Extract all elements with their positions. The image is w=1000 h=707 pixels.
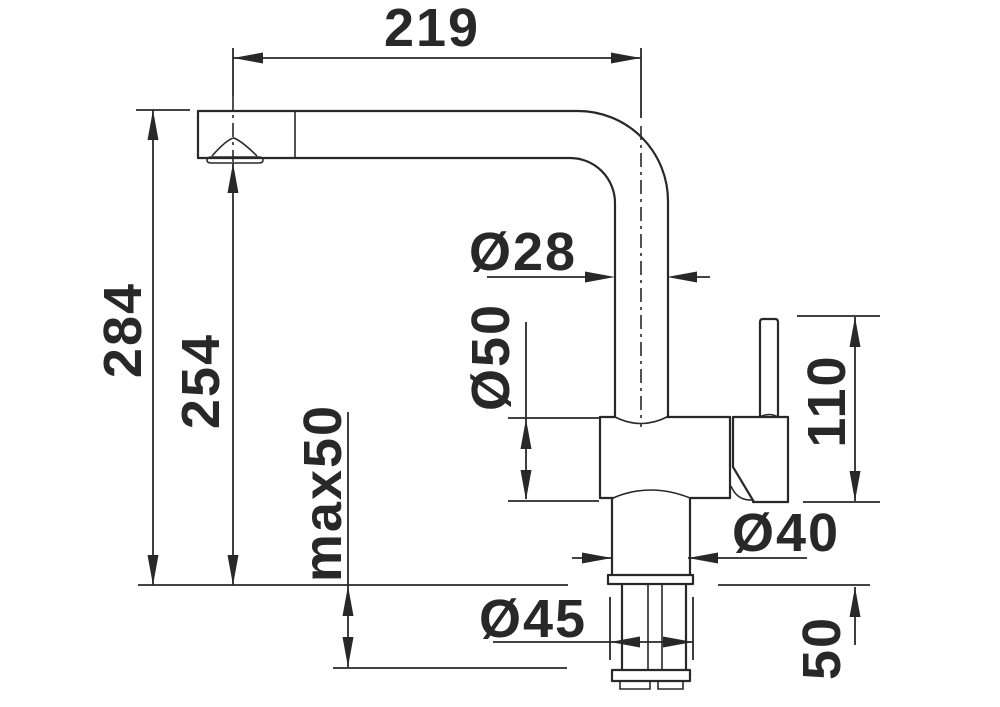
dimension-label-drill-hole-diameter: Ø45 bbox=[479, 589, 587, 649]
mounting-shank bbox=[608, 498, 693, 689]
technical-drawing-page: 219 284 254 max50 Ø28 Ø50 110 Ø40 Ø45 50 bbox=[0, 0, 1000, 707]
spout-inner-edge bbox=[198, 158, 615, 417]
mounting-nut bbox=[612, 670, 690, 681]
handle-base bbox=[731, 415, 788, 503]
dimension-labels: 219 284 254 max50 Ø28 Ø50 110 Ø40 Ø45 50 bbox=[93, 0, 857, 680]
lever-handle bbox=[760, 319, 778, 417]
dimension-label-spout-tube-diameter: Ø28 bbox=[469, 222, 577, 282]
dimension-label-spout-reach: 219 bbox=[384, 0, 480, 58]
aerator-cone bbox=[212, 138, 257, 156]
faucet-dimension-drawing: 219 284 254 max50 Ø28 Ø50 110 Ø40 Ø45 50 bbox=[0, 0, 1000, 707]
dimension-label-outlet-height: 254 bbox=[171, 333, 231, 429]
dimension-label-base-diameter: Ø40 bbox=[732, 503, 840, 563]
dimension-label-body-diameter: Ø50 bbox=[461, 303, 521, 411]
mixer-body bbox=[600, 417, 730, 498]
dimension-label-lever-height: 110 bbox=[797, 354, 857, 447]
mounting-tabs bbox=[620, 681, 683, 689]
supply-hoses bbox=[648, 584, 662, 670]
dimension-label-overall-height: 284 bbox=[93, 282, 153, 378]
dimension-label-under-counter-length: 50 bbox=[792, 616, 852, 680]
dimension-label-max-mounting-thickness: max50 bbox=[293, 404, 353, 582]
